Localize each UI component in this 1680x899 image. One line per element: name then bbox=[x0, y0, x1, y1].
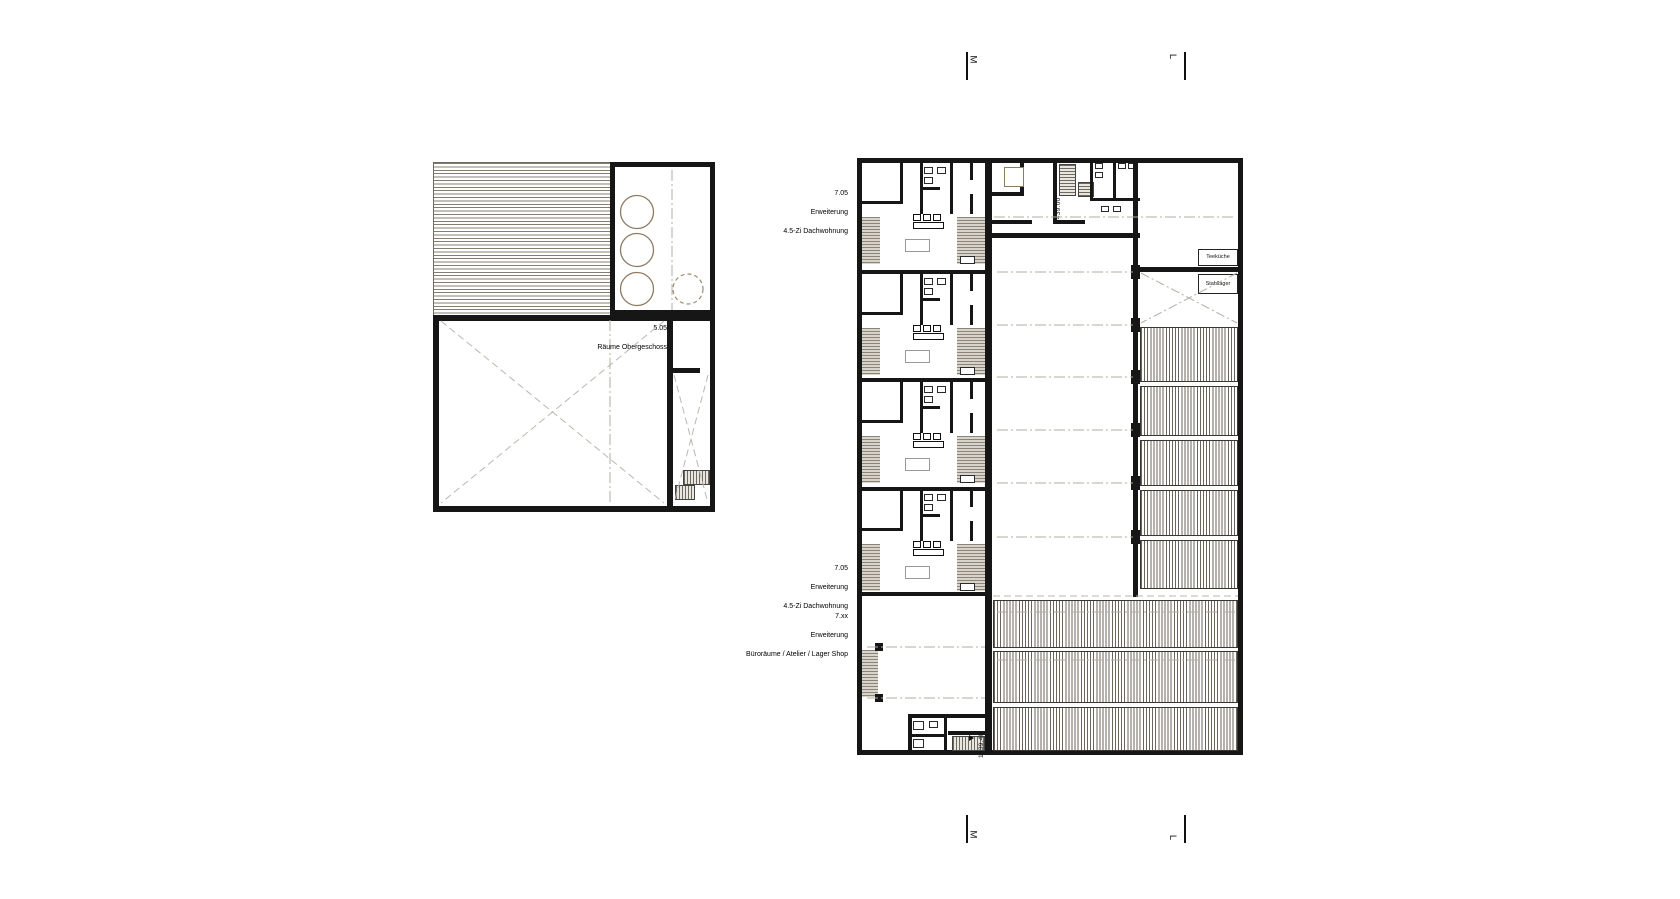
wall bbox=[920, 406, 940, 409]
room-label: Stahllager bbox=[1206, 281, 1231, 287]
kitchen-counter bbox=[923, 214, 931, 221]
wall bbox=[1113, 158, 1116, 200]
wall bbox=[862, 201, 903, 204]
wall bbox=[433, 315, 439, 512]
elevation-text: 1439.40 bbox=[978, 732, 985, 758]
bath-fixture bbox=[924, 504, 933, 511]
roof-hatch-band bbox=[1140, 327, 1238, 382]
bench bbox=[960, 583, 975, 591]
bath-fixture bbox=[937, 386, 946, 393]
wall bbox=[920, 514, 940, 517]
wall bbox=[1090, 158, 1093, 200]
roof-hatch-band bbox=[993, 600, 1238, 648]
label-dachwohnung-top: 7.05 Erweiterung 4.5-Zi Dachwohnung bbox=[728, 189, 848, 237]
section-label-l-top: L bbox=[1167, 54, 1178, 59]
corridor-wall bbox=[985, 158, 992, 755]
wall bbox=[900, 490, 903, 528]
apartment-unit bbox=[862, 163, 985, 270]
roof-hatch-band bbox=[1140, 440, 1238, 486]
roof-hatch-area bbox=[433, 162, 610, 315]
right-plan-erweiterung: 1439.40 1439.00 Teeküche Stahllager bbox=[857, 158, 1243, 755]
kitchen-counter bbox=[923, 433, 931, 440]
roof-hatch-band bbox=[1140, 386, 1238, 436]
wall bbox=[667, 315, 673, 512]
wall bbox=[970, 521, 973, 541]
wall bbox=[908, 714, 912, 750]
bath-fixture bbox=[924, 396, 933, 403]
table bbox=[905, 350, 930, 363]
wall bbox=[1133, 267, 1238, 272]
section-line-l-top bbox=[1184, 52, 1186, 80]
balcony-deck-hatch bbox=[862, 328, 880, 375]
section-line-l-bottom bbox=[1184, 815, 1186, 843]
apartment-unit bbox=[862, 274, 985, 381]
wc-fixture bbox=[913, 739, 924, 748]
kitchen-counter bbox=[933, 541, 941, 548]
label-line: Büroräume / Atelier / Lager Shop bbox=[746, 651, 848, 658]
skylight bbox=[1004, 167, 1024, 187]
wall bbox=[970, 490, 973, 507]
wall bbox=[970, 274, 973, 291]
wall bbox=[970, 194, 973, 214]
wc-fixture bbox=[1118, 163, 1126, 169]
wall bbox=[900, 163, 903, 201]
wall bbox=[862, 528, 903, 531]
wall bbox=[970, 163, 973, 180]
label-line: Räume Obergeschoss bbox=[597, 344, 667, 351]
bath-fixture bbox=[924, 288, 933, 295]
wall bbox=[672, 368, 700, 373]
wall bbox=[710, 315, 715, 512]
kitchen-counter bbox=[913, 222, 944, 229]
apartment-unit bbox=[862, 490, 985, 597]
kitchen-counter bbox=[913, 333, 944, 340]
wall bbox=[970, 305, 973, 325]
kitchen-counter bbox=[923, 541, 931, 548]
roof-hatch-band bbox=[993, 707, 1238, 751]
hall-top-wall bbox=[992, 233, 1140, 238]
left-plan-obergeschoss: 5.05 Räume Obergeschoss bbox=[433, 162, 715, 512]
bench bbox=[960, 367, 975, 375]
wall bbox=[912, 734, 944, 737]
label-code: 7.05 bbox=[834, 565, 848, 572]
door-jamb bbox=[1131, 370, 1140, 384]
door-jamb bbox=[1131, 318, 1140, 332]
wall bbox=[862, 420, 903, 423]
wall bbox=[970, 382, 973, 399]
wall bbox=[992, 192, 1024, 196]
kitchen-counter bbox=[923, 325, 931, 332]
kitchen-counter bbox=[913, 441, 944, 448]
bath-fixture bbox=[924, 177, 933, 184]
label-line: 4.5-Zi Dachwohnung bbox=[783, 228, 848, 235]
room-tanks bbox=[610, 162, 715, 315]
balcony-deck-hatch bbox=[862, 436, 880, 483]
wall bbox=[862, 312, 903, 315]
bath-fixture bbox=[924, 278, 933, 285]
wc-fixture bbox=[1113, 206, 1121, 212]
stair-flight bbox=[675, 485, 695, 500]
roof-hatch-band bbox=[1140, 540, 1238, 589]
wall bbox=[920, 298, 940, 301]
wall bbox=[908, 714, 988, 718]
roof-hatch-band bbox=[993, 651, 1238, 703]
label-raeume-obergeschoss: 5.05 Räume Obergeschoss bbox=[517, 324, 667, 353]
wc-fixture bbox=[1095, 172, 1103, 178]
bath-fixture bbox=[937, 494, 946, 501]
kitchen-counter bbox=[933, 325, 941, 332]
kitchen-counter bbox=[913, 549, 944, 556]
wall bbox=[900, 382, 903, 420]
elevation-text: 1439.00 bbox=[1055, 197, 1062, 223]
outer-wall bbox=[1238, 158, 1243, 755]
section-label-m-top: M bbox=[967, 56, 978, 64]
door-jamb bbox=[1131, 476, 1140, 490]
label-code: 7.xx bbox=[835, 613, 848, 620]
bench bbox=[960, 256, 975, 264]
label-code: 7.05 bbox=[834, 190, 848, 197]
wall bbox=[950, 163, 953, 214]
roof-hatch-band bbox=[1140, 490, 1238, 536]
bath-fixture bbox=[937, 167, 946, 174]
bath-fixture bbox=[924, 494, 933, 501]
wall bbox=[970, 413, 973, 433]
wall bbox=[900, 274, 903, 312]
label-line: Erweiterung bbox=[811, 584, 848, 591]
table bbox=[905, 566, 930, 579]
label-line: 4.5-Zi Dachwohnung bbox=[783, 603, 848, 610]
balcony-deck-hatch bbox=[862, 544, 880, 591]
room-teekueche: Teeküche bbox=[1198, 249, 1238, 266]
kitchen-counter bbox=[913, 214, 921, 221]
stair-flight bbox=[683, 470, 710, 485]
level-arrow bbox=[969, 735, 974, 741]
kitchen-counter bbox=[913, 433, 921, 440]
kitchen-counter bbox=[933, 433, 941, 440]
wc-fixture bbox=[1095, 163, 1103, 169]
wc-fixture bbox=[929, 721, 938, 728]
bath-fixture bbox=[924, 386, 933, 393]
apartment-unit bbox=[862, 382, 985, 489]
kitchen-counter bbox=[933, 214, 941, 221]
door-jamb bbox=[1131, 530, 1140, 544]
column-marker bbox=[875, 643, 883, 651]
label-bueroraeume: 7.xx Erweiterung Büroräume / Atelier / L… bbox=[700, 612, 848, 660]
room-label: Teeküche bbox=[1206, 254, 1230, 260]
floor-plan-sheet: M L M L 7.05 Erweiterung 4.5-Zi Dachwohn… bbox=[0, 0, 1680, 899]
wc-fixture bbox=[1101, 206, 1109, 212]
section-line-m-bottom bbox=[966, 815, 968, 843]
table bbox=[905, 239, 930, 252]
wall bbox=[950, 490, 953, 541]
bench bbox=[960, 475, 975, 483]
label-code: 5.05 bbox=[653, 325, 667, 332]
label-line: Erweiterung bbox=[811, 632, 848, 639]
bath-fixture bbox=[924, 167, 933, 174]
table bbox=[905, 458, 930, 471]
kitchen-counter bbox=[913, 325, 921, 332]
wall bbox=[944, 718, 947, 750]
wall bbox=[920, 187, 940, 190]
kitchen-counter bbox=[913, 541, 921, 548]
column-marker bbox=[875, 694, 883, 702]
balcony-deck-hatch bbox=[862, 217, 880, 264]
wall bbox=[950, 274, 953, 325]
section-label-l-bottom: L bbox=[1167, 835, 1178, 840]
bath-fixture bbox=[937, 278, 946, 285]
wc-fixture bbox=[913, 721, 924, 730]
door-jamb bbox=[1131, 423, 1140, 437]
room-stahllager: Stahllager bbox=[1198, 274, 1238, 294]
label-line: Erweiterung bbox=[811, 209, 848, 216]
balcony-deck-hatch bbox=[862, 650, 878, 697]
stair-flight bbox=[1059, 164, 1076, 196]
section-label-m-bottom: M bbox=[967, 831, 978, 839]
label-dachwohnung-mid: 7.05 Erweiterung 4.5-Zi Dachwohnung bbox=[728, 564, 848, 612]
wall bbox=[992, 220, 1032, 224]
wall bbox=[950, 382, 953, 433]
